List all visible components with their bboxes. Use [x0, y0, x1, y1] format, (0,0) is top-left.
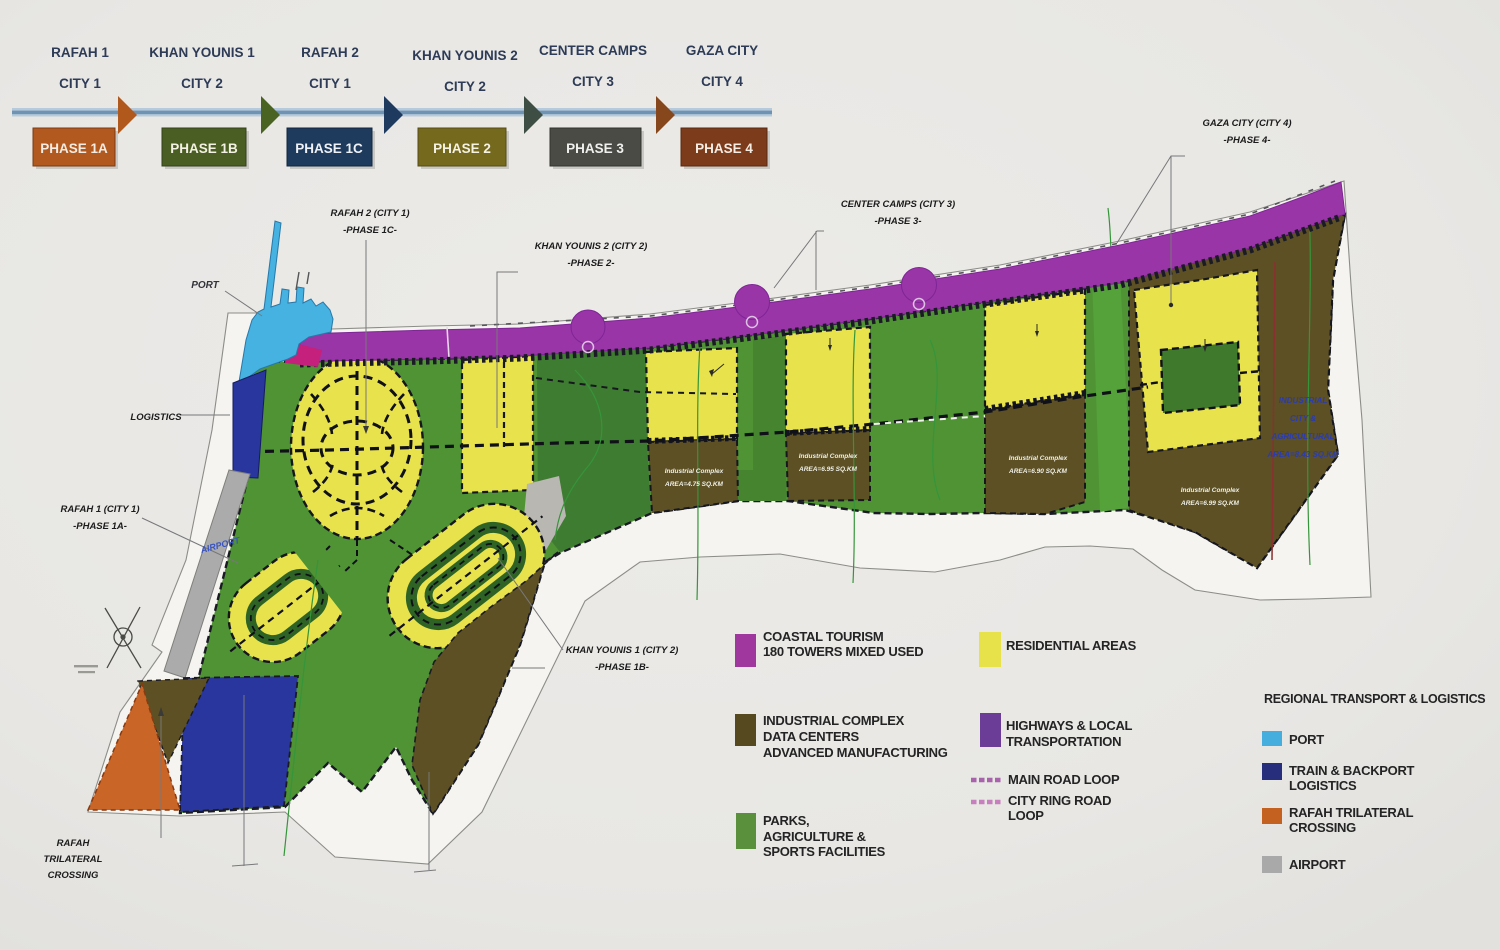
svg-text:INDUSTRIAL COMPLEX: INDUSTRIAL COMPLEX: [763, 713, 905, 728]
svg-text:AIRPORT: AIRPORT: [1289, 857, 1346, 872]
svg-text:-PHASE 4-: -PHASE 4-: [1224, 135, 1271, 146]
svg-text:KHAN YOUNIS 1 (CITY 2): KHAN YOUNIS 1 (CITY 2): [566, 645, 679, 656]
svg-text:KHAN YOUNIS 1: KHAN YOUNIS 1: [149, 45, 255, 60]
svg-text:RAFAH 2 (CITY 1): RAFAH 2 (CITY 1): [330, 208, 409, 219]
svg-text:PHASE 1A: PHASE 1A: [40, 141, 108, 156]
svg-text:CITY 4: CITY 4: [701, 74, 743, 89]
svg-text:CITY 2: CITY 2: [181, 76, 223, 91]
svg-text:AGRICULTURE &: AGRICULTURE &: [763, 829, 866, 844]
svg-text:CITY 1: CITY 1: [59, 76, 101, 91]
svg-text:MAIN ROAD LOOP: MAIN ROAD LOOP: [1008, 772, 1120, 787]
svg-text:-PHASE 1A-: -PHASE 1A-: [73, 521, 127, 532]
svg-text:SPORTS FACILITIES: SPORTS FACILITIES: [763, 844, 886, 859]
svg-text:HIGHWAYS & LOCAL: HIGHWAYS & LOCAL: [1006, 718, 1133, 733]
svg-text:TRAIN & BACKPORT: TRAIN & BACKPORT: [1289, 763, 1415, 778]
svg-text:RAFAH 1: RAFAH 1: [51, 45, 109, 60]
svg-text:CENTER CAMPS (CITY 3): CENTER CAMPS (CITY 3): [841, 199, 955, 210]
svg-text:KHAN YOUNIS 2: KHAN YOUNIS 2: [412, 48, 518, 63]
svg-text:Industrial Complex: Industrial Complex: [1181, 487, 1240, 494]
svg-text:PORT: PORT: [1289, 732, 1324, 747]
svg-text:COASTAL TOURISM: COASTAL TOURISM: [763, 629, 883, 644]
svg-text:INDUSTRIAL: INDUSTRIAL: [1279, 396, 1328, 405]
svg-text:PHASE 2: PHASE 2: [433, 141, 491, 156]
svg-text:REGIONAL TRANSPORT & LOGISTICS: REGIONAL TRANSPORT & LOGISTICS: [1264, 692, 1485, 706]
svg-text:PORT: PORT: [191, 280, 219, 291]
svg-text:CENTER CAMPS: CENTER CAMPS: [539, 43, 647, 58]
svg-text:AGRICULTURAL: AGRICULTURAL: [1271, 432, 1335, 441]
svg-text:CITY &: CITY &: [1290, 414, 1316, 423]
svg-text:RAFAH TRILATERAL: RAFAH TRILATERAL: [1289, 805, 1414, 820]
svg-text:PARKS,: PARKS,: [763, 813, 809, 828]
svg-text:AREA=4.75 SQ.KM: AREA=4.75 SQ.KM: [664, 481, 724, 488]
svg-text:AREA=6.99 SQ.KM: AREA=6.99 SQ.KM: [1180, 500, 1240, 507]
svg-text:Industrial Complex: Industrial Complex: [1009, 455, 1068, 462]
svg-text:LOOP: LOOP: [1008, 808, 1044, 823]
svg-text:GAZA CITY (CITY 4): GAZA CITY (CITY 4): [1202, 118, 1291, 129]
svg-text:CITY 3: CITY 3: [572, 74, 614, 89]
svg-text:ADVANCED MANUFACTURING: ADVANCED MANUFACTURING: [763, 745, 948, 760]
svg-text:Industrial Complex: Industrial Complex: [799, 453, 858, 460]
svg-text:AREA=8.43 SQ.KM: AREA=8.43 SQ.KM: [1266, 450, 1339, 459]
svg-text:RESIDENTIAL AREAS: RESIDENTIAL AREAS: [1006, 638, 1137, 653]
svg-text:AREA=6.90 SQ.KM: AREA=6.90 SQ.KM: [1008, 468, 1068, 475]
svg-text:GAZA CITY: GAZA CITY: [686, 43, 758, 58]
svg-text:Industrial Complex: Industrial Complex: [665, 468, 724, 475]
svg-text:CITY RING ROAD: CITY RING ROAD: [1008, 793, 1111, 808]
svg-text:CITY 2: CITY 2: [444, 79, 486, 94]
svg-text:PHASE 3: PHASE 3: [566, 141, 624, 156]
svg-text:TRILATERAL: TRILATERAL: [44, 854, 103, 865]
svg-text:-PHASE 3-: -PHASE 3-: [875, 216, 922, 227]
svg-text:RAFAH 2: RAFAH 2: [301, 45, 359, 60]
svg-text:PHASE 4: PHASE 4: [695, 141, 753, 156]
svg-text:RAFAH: RAFAH: [57, 838, 91, 849]
svg-text:-PHASE 1C-: -PHASE 1C-: [343, 225, 397, 236]
svg-text:-PHASE 1B-: -PHASE 1B-: [595, 662, 649, 673]
svg-text:AREA=6.95 SQ.KM: AREA=6.95 SQ.KM: [798, 466, 858, 473]
svg-text:DATA CENTERS: DATA CENTERS: [763, 729, 859, 744]
svg-text:CROSSING: CROSSING: [1289, 820, 1356, 835]
svg-text:CROSSING: CROSSING: [48, 870, 99, 881]
svg-text:RAFAH 1 (CITY 1): RAFAH 1 (CITY 1): [60, 504, 139, 515]
svg-text:LOGISTICS: LOGISTICS: [1289, 778, 1357, 793]
svg-text:PHASE 1C: PHASE 1C: [295, 141, 363, 156]
svg-text:TRANSPORTATION: TRANSPORTATION: [1006, 734, 1121, 749]
svg-text:LOGISTICS: LOGISTICS: [130, 412, 182, 423]
svg-text:KHAN YOUNIS 2 (CITY 2): KHAN YOUNIS 2 (CITY 2): [535, 241, 648, 252]
svg-text:CITY 1: CITY 1: [309, 76, 351, 91]
svg-text:PHASE 1B: PHASE 1B: [170, 141, 238, 156]
svg-text:180 TOWERS MIXED USED: 180 TOWERS MIXED USED: [763, 644, 923, 659]
svg-text:-PHASE 2-: -PHASE 2-: [568, 258, 615, 269]
